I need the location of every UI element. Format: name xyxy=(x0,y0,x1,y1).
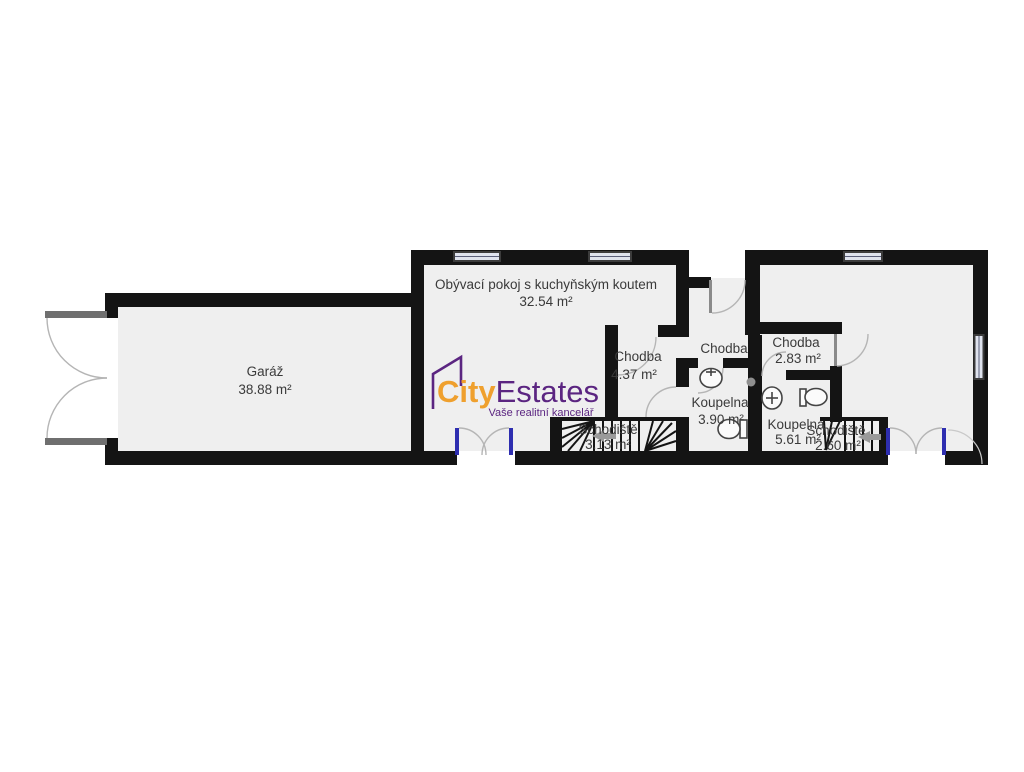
room-label-hallway-right: Chodba 2.83 m² xyxy=(772,335,821,366)
window xyxy=(588,251,632,262)
svg-text:4.37 m²: 4.37 m² xyxy=(611,367,657,382)
svg-text:3.90 m²: 3.90 m² xyxy=(698,412,744,427)
svg-text:Obývací pokoj s kuchyňským kou: Obývací pokoj s kuchyňským koutem xyxy=(435,277,657,292)
window xyxy=(843,251,883,262)
svg-text:3.13 m²: 3.13 m² xyxy=(585,437,631,452)
garage-floor xyxy=(118,307,411,451)
svg-text:Koupelna: Koupelna xyxy=(691,395,749,410)
garage-door xyxy=(45,311,107,445)
room-label-staircase-right: Schodiště 2.60 m² xyxy=(806,423,865,453)
svg-text:2.83 m²: 2.83 m² xyxy=(775,351,821,366)
svg-text:Chodba: Chodba xyxy=(772,335,820,350)
logo-tagline: Vaše realitní kancelář xyxy=(489,407,594,419)
svg-text:2.60 m²: 2.60 m² xyxy=(815,438,861,453)
sink-icon xyxy=(762,387,782,409)
room-label-staircase-left: Schodiště 3.13 m² xyxy=(578,422,637,452)
window xyxy=(453,251,501,262)
svg-text:Schodiště: Schodiště xyxy=(806,423,865,438)
svg-text:Chodba: Chodba xyxy=(614,349,662,364)
toilet-icon xyxy=(800,389,827,407)
svg-text:Schodiště: Schodiště xyxy=(578,422,637,437)
radiator-icon xyxy=(747,378,756,387)
floor-plan: Garáž 38.88 m² Obývací pokoj s kuchyňský… xyxy=(0,0,1024,772)
room-label-entry-hall: Chodba xyxy=(700,341,748,356)
svg-text:38.88 m²: 38.88 m² xyxy=(238,382,292,397)
window xyxy=(974,334,985,380)
floor-plan-page: Garáž 38.88 m² Obývací pokoj s kuchyňský… xyxy=(0,0,1024,772)
svg-text:Chodba: Chodba xyxy=(700,341,748,356)
sink-icon xyxy=(700,368,722,388)
logo-wordmark: CityEstates xyxy=(437,374,599,409)
svg-text:Garáž: Garáž xyxy=(247,364,284,379)
svg-text:32.54 m²: 32.54 m² xyxy=(519,294,573,309)
